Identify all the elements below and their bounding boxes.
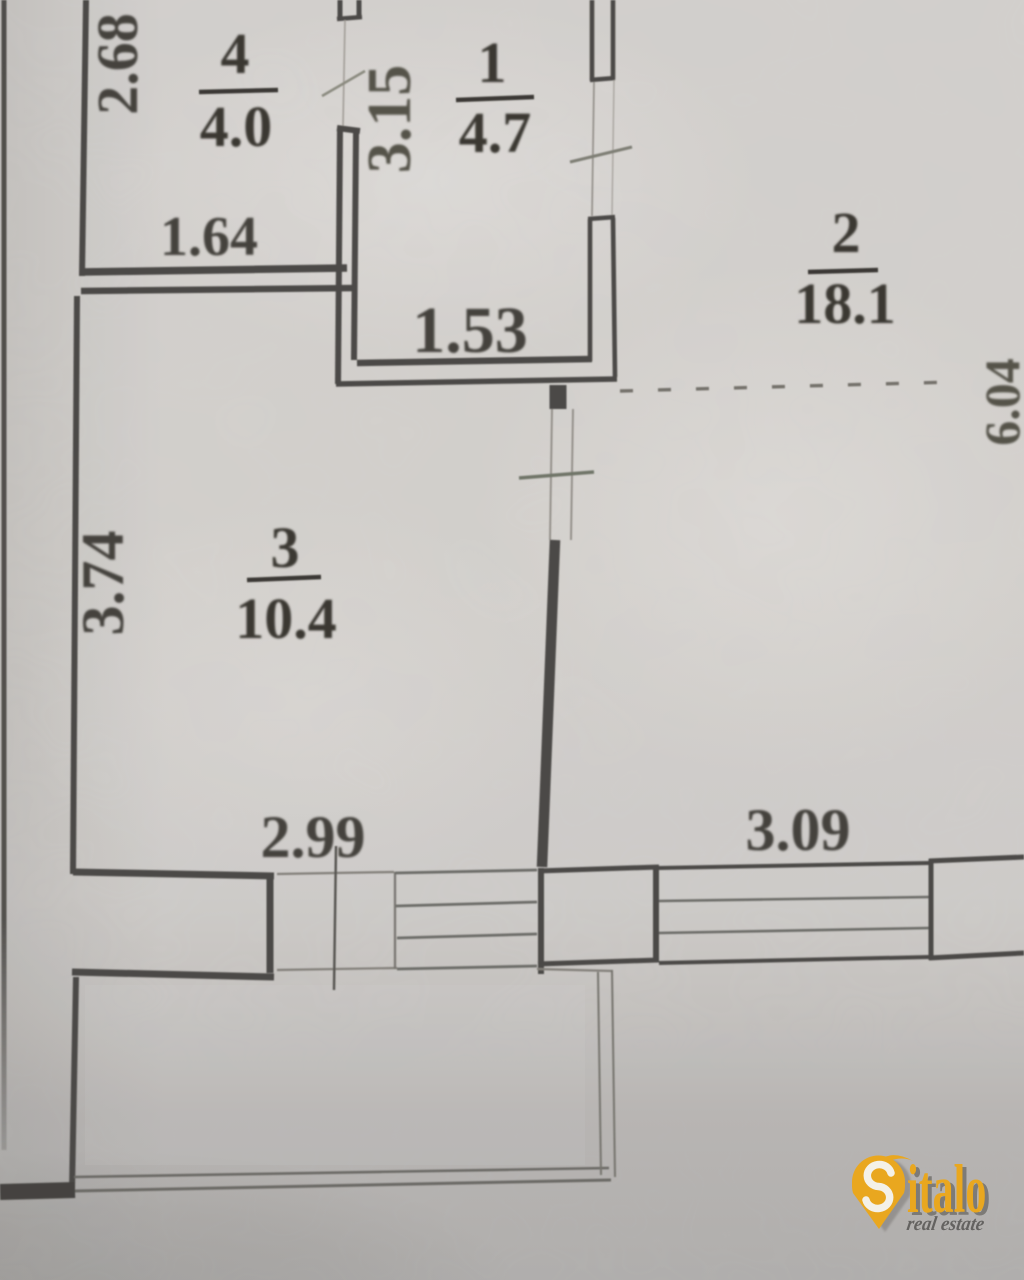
- svg-text:1.53: 1.53: [412, 294, 528, 367]
- svg-text:2: 2: [832, 200, 861, 265]
- svg-text:4.7: 4.7: [459, 100, 532, 165]
- svg-text:4: 4: [221, 21, 250, 86]
- svg-text:10.4: 10.4: [235, 586, 337, 651]
- svg-text:18.1: 18.1: [794, 271, 896, 336]
- svg-text:3: 3: [271, 515, 300, 580]
- svg-text:1: 1: [478, 30, 507, 95]
- svg-text:3.15: 3.15: [356, 65, 424, 174]
- svg-text:2.99: 2.99: [261, 804, 366, 870]
- svg-text:1.64: 1.64: [160, 206, 258, 268]
- svg-text:3.74: 3.74: [70, 531, 136, 636]
- svg-text:6.04: 6.04: [974, 358, 1024, 446]
- svg-text:3.09: 3.09: [746, 797, 851, 863]
- svg-text:4.0: 4.0: [200, 94, 273, 159]
- svg-text:2.68: 2.68: [85, 13, 150, 115]
- svg-text:real estate: real estate: [905, 1213, 986, 1235]
